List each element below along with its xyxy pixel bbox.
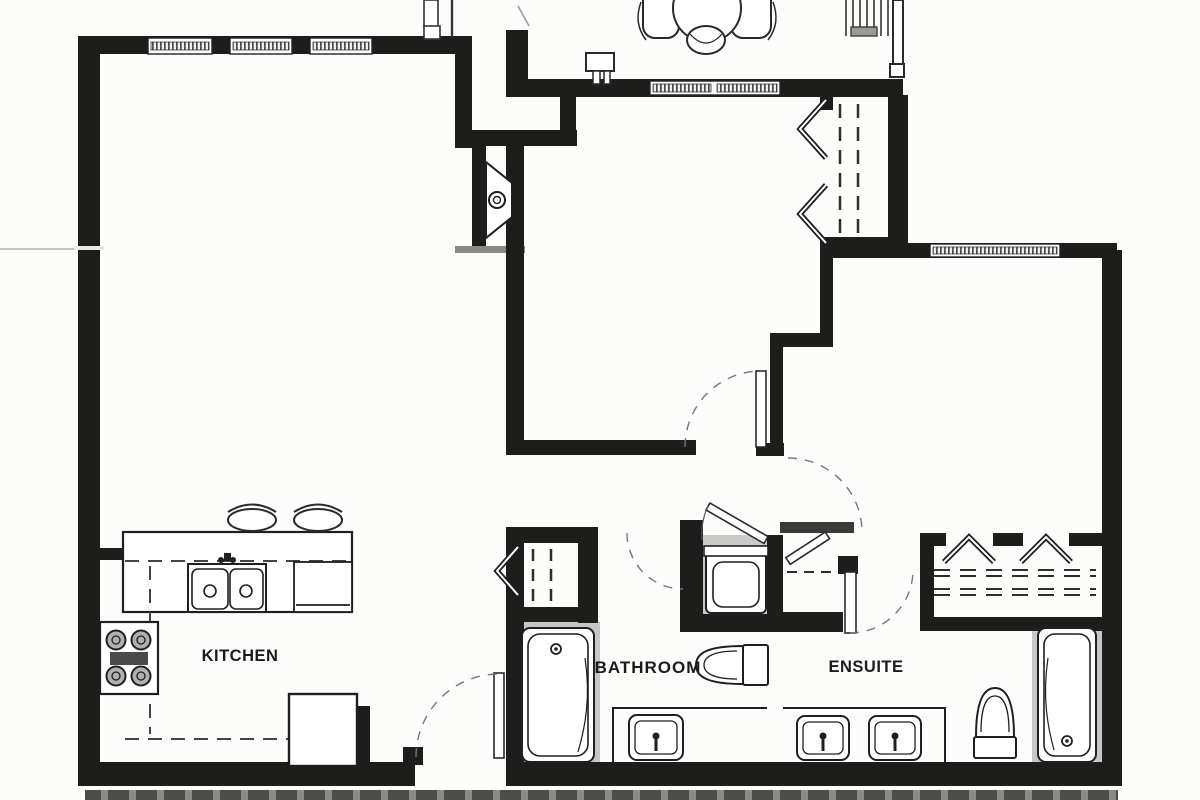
patio-chair-icon	[687, 26, 725, 54]
refrigerator-icon	[289, 694, 357, 766]
wall-kitchen-stub	[98, 548, 124, 560]
railing-icon	[890, 0, 904, 77]
wall-bath-laundry-divider	[680, 520, 703, 632]
bar-stool-icon	[294, 505, 342, 532]
wall-master-closet-top1	[920, 533, 946, 546]
bar-stool-icon	[228, 505, 276, 532]
toilet-icon	[696, 645, 768, 685]
wall-exterior-left	[78, 36, 100, 786]
window-icon	[310, 38, 372, 54]
wall-heater-closet-left	[472, 146, 486, 250]
wall-hall-right	[770, 340, 783, 456]
paper-crease-over-wall	[74, 246, 104, 250]
dishwasher-icon	[294, 562, 352, 612]
window-icon	[930, 244, 1060, 257]
window-icon	[230, 38, 292, 54]
wall-bedroom-closet-right	[888, 95, 908, 253]
bathtub-icon	[1038, 628, 1096, 762]
wall-exterior-right	[1102, 250, 1122, 786]
wall-vestibule-thin	[780, 522, 854, 533]
scan-edge-strip	[85, 790, 1118, 800]
wall-exterior-bottom-right	[506, 762, 1120, 786]
stove-burners-icon	[100, 622, 158, 694]
floor-plan-page: KITCHEN BATHROOM ENSUITE	[0, 0, 1200, 800]
wall-master-closet-top3	[1069, 533, 1111, 546]
floor-plan-drawing: KITCHEN BATHROOM ENSUITE	[0, 0, 1200, 800]
window-icon	[148, 38, 212, 54]
wall-master-closet-top2	[993, 533, 1023, 546]
window-icon	[650, 81, 780, 95]
stairs-icon	[846, 0, 888, 36]
wall-bedroom-bottom	[506, 440, 696, 455]
wall-exterior-bottom-left	[78, 762, 415, 786]
wall-master-closet-left	[920, 533, 934, 628]
kitchen-label: KITCHEN	[202, 647, 279, 665]
wall-ensuite-top-west	[770, 612, 843, 632]
ensuite-label: ENSUITE	[828, 658, 903, 676]
bathroom-label: BATHROOM	[595, 658, 702, 677]
bathtub-icon	[522, 628, 594, 762]
washer-icon	[704, 546, 768, 613]
wall-entry-jamb	[403, 747, 423, 765]
wall-fridge-stub	[357, 706, 370, 764]
wall-laundry-bottom	[700, 614, 770, 632]
